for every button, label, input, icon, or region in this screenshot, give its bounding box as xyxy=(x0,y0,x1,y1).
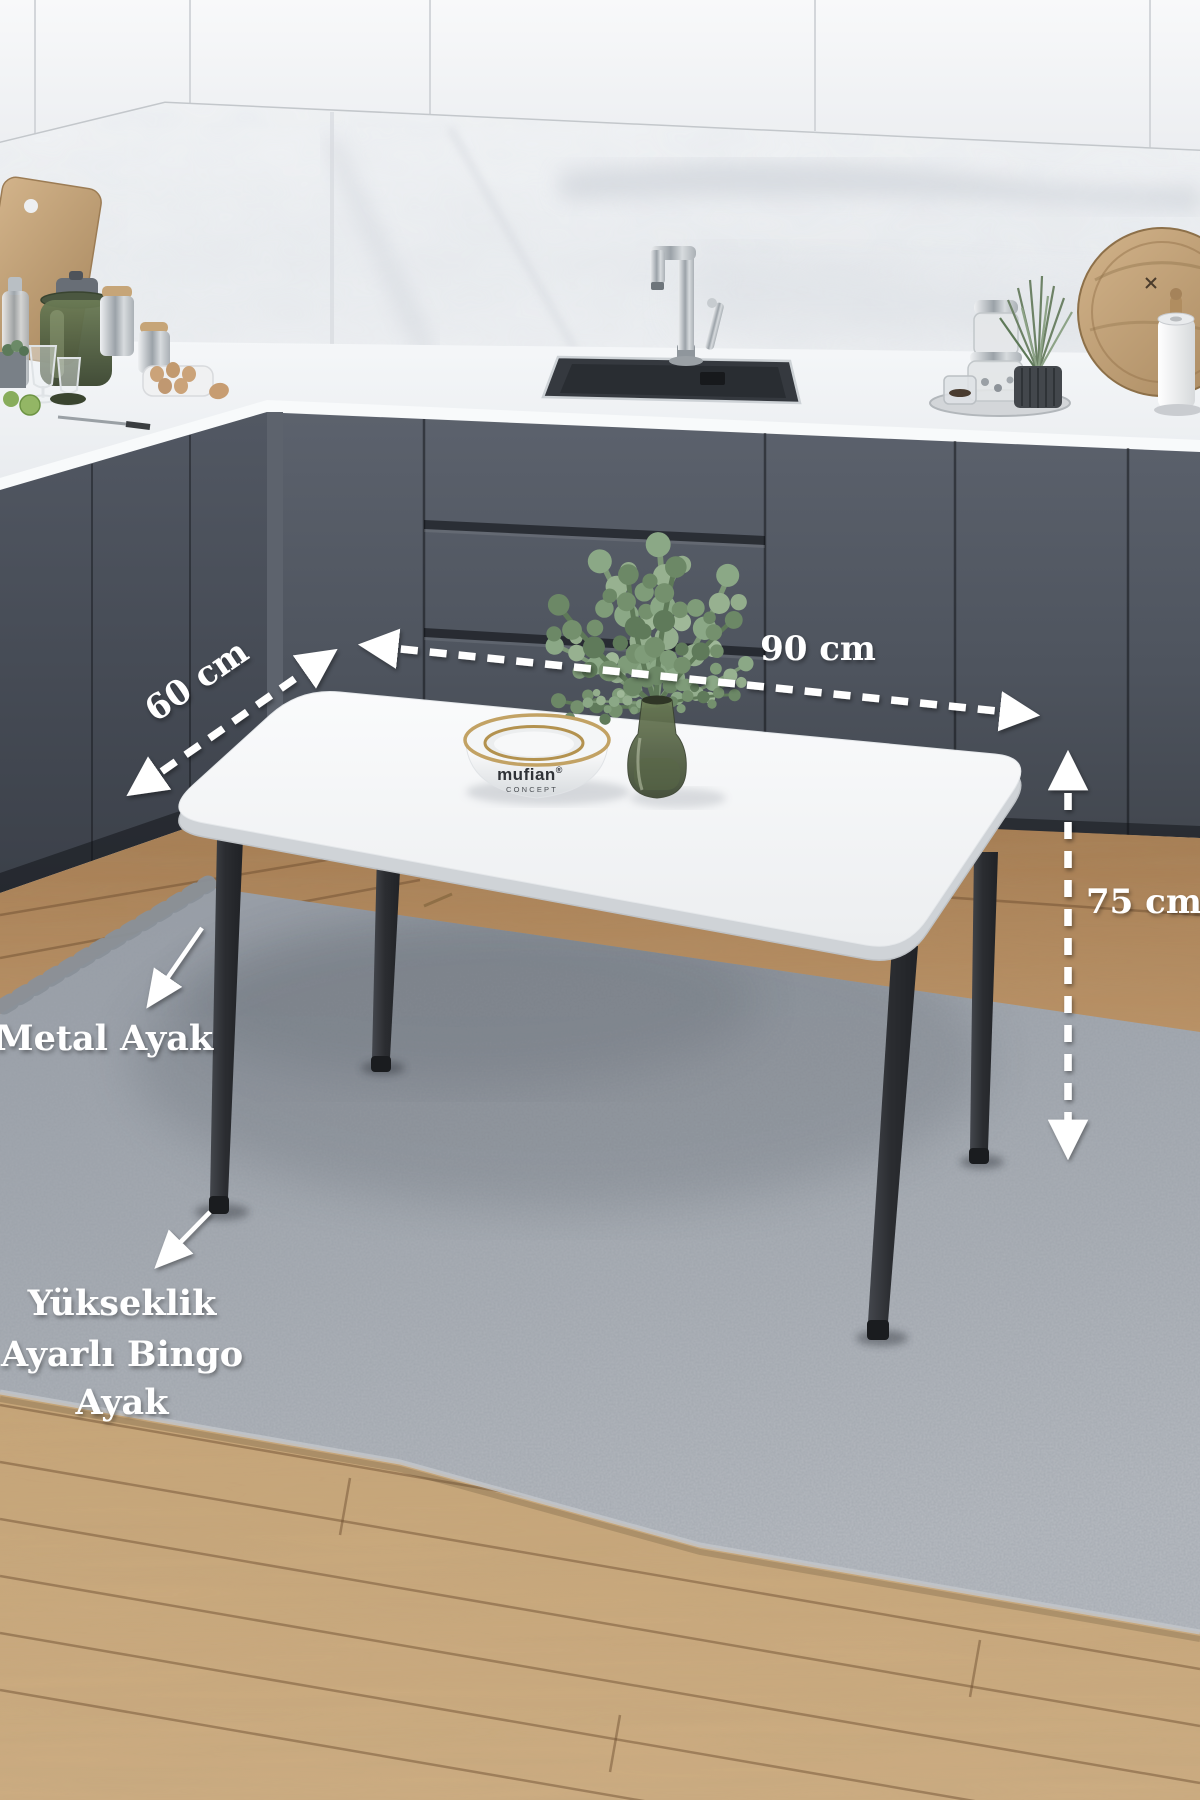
chrome-canister-large xyxy=(100,286,134,356)
metal-leg-callout-label: Metal Ayak xyxy=(0,1018,214,1059)
cutting-board-hole xyxy=(24,199,38,213)
green-apple xyxy=(20,395,40,415)
adjustable-foot-label-line3: Ayak xyxy=(74,1382,169,1423)
brand-logo: mufian® xyxy=(497,765,563,784)
product-photo-kitchen-table: mufian® CONCEPT 90 cm 60 cm 75 cm Metal … xyxy=(0,0,1200,1800)
glass-cup xyxy=(944,376,976,404)
adjustable-foot-label-line1: Yükseklik xyxy=(27,1283,217,1324)
planter-box xyxy=(0,340,29,388)
brand-logo-subtitle: CONCEPT xyxy=(506,785,558,794)
green-apple-2 xyxy=(3,391,19,407)
height-dimension-label: 75 cm xyxy=(1086,882,1200,922)
green-dish xyxy=(50,393,86,405)
scene: mufian® CONCEPT 90 cm 60 cm 75 cm Metal … xyxy=(0,0,1200,1800)
width-dimension-label: 90 cm xyxy=(760,629,876,669)
adjustable-foot-label-line2: Ayarlı Bingo xyxy=(0,1334,243,1375)
sink-basin-inner xyxy=(560,364,786,398)
sink-overflow xyxy=(700,372,725,385)
